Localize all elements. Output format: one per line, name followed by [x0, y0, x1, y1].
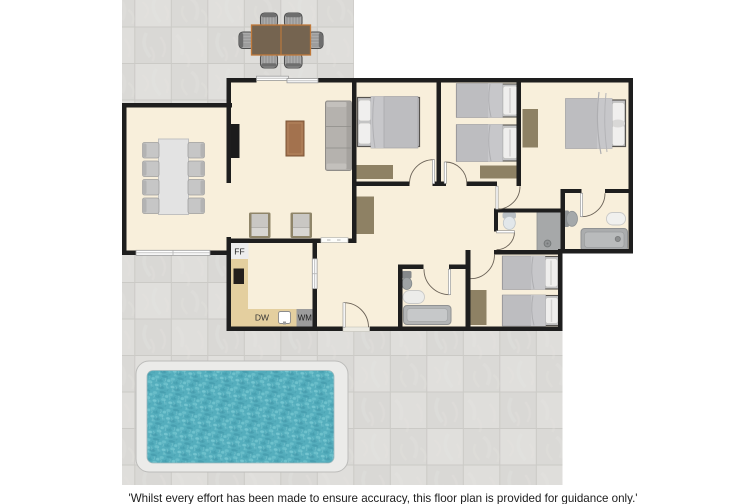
svg-text:FF: FF: [234, 247, 244, 257]
svg-text:DW: DW: [255, 313, 269, 323]
svg-text:WM: WM: [298, 314, 313, 323]
